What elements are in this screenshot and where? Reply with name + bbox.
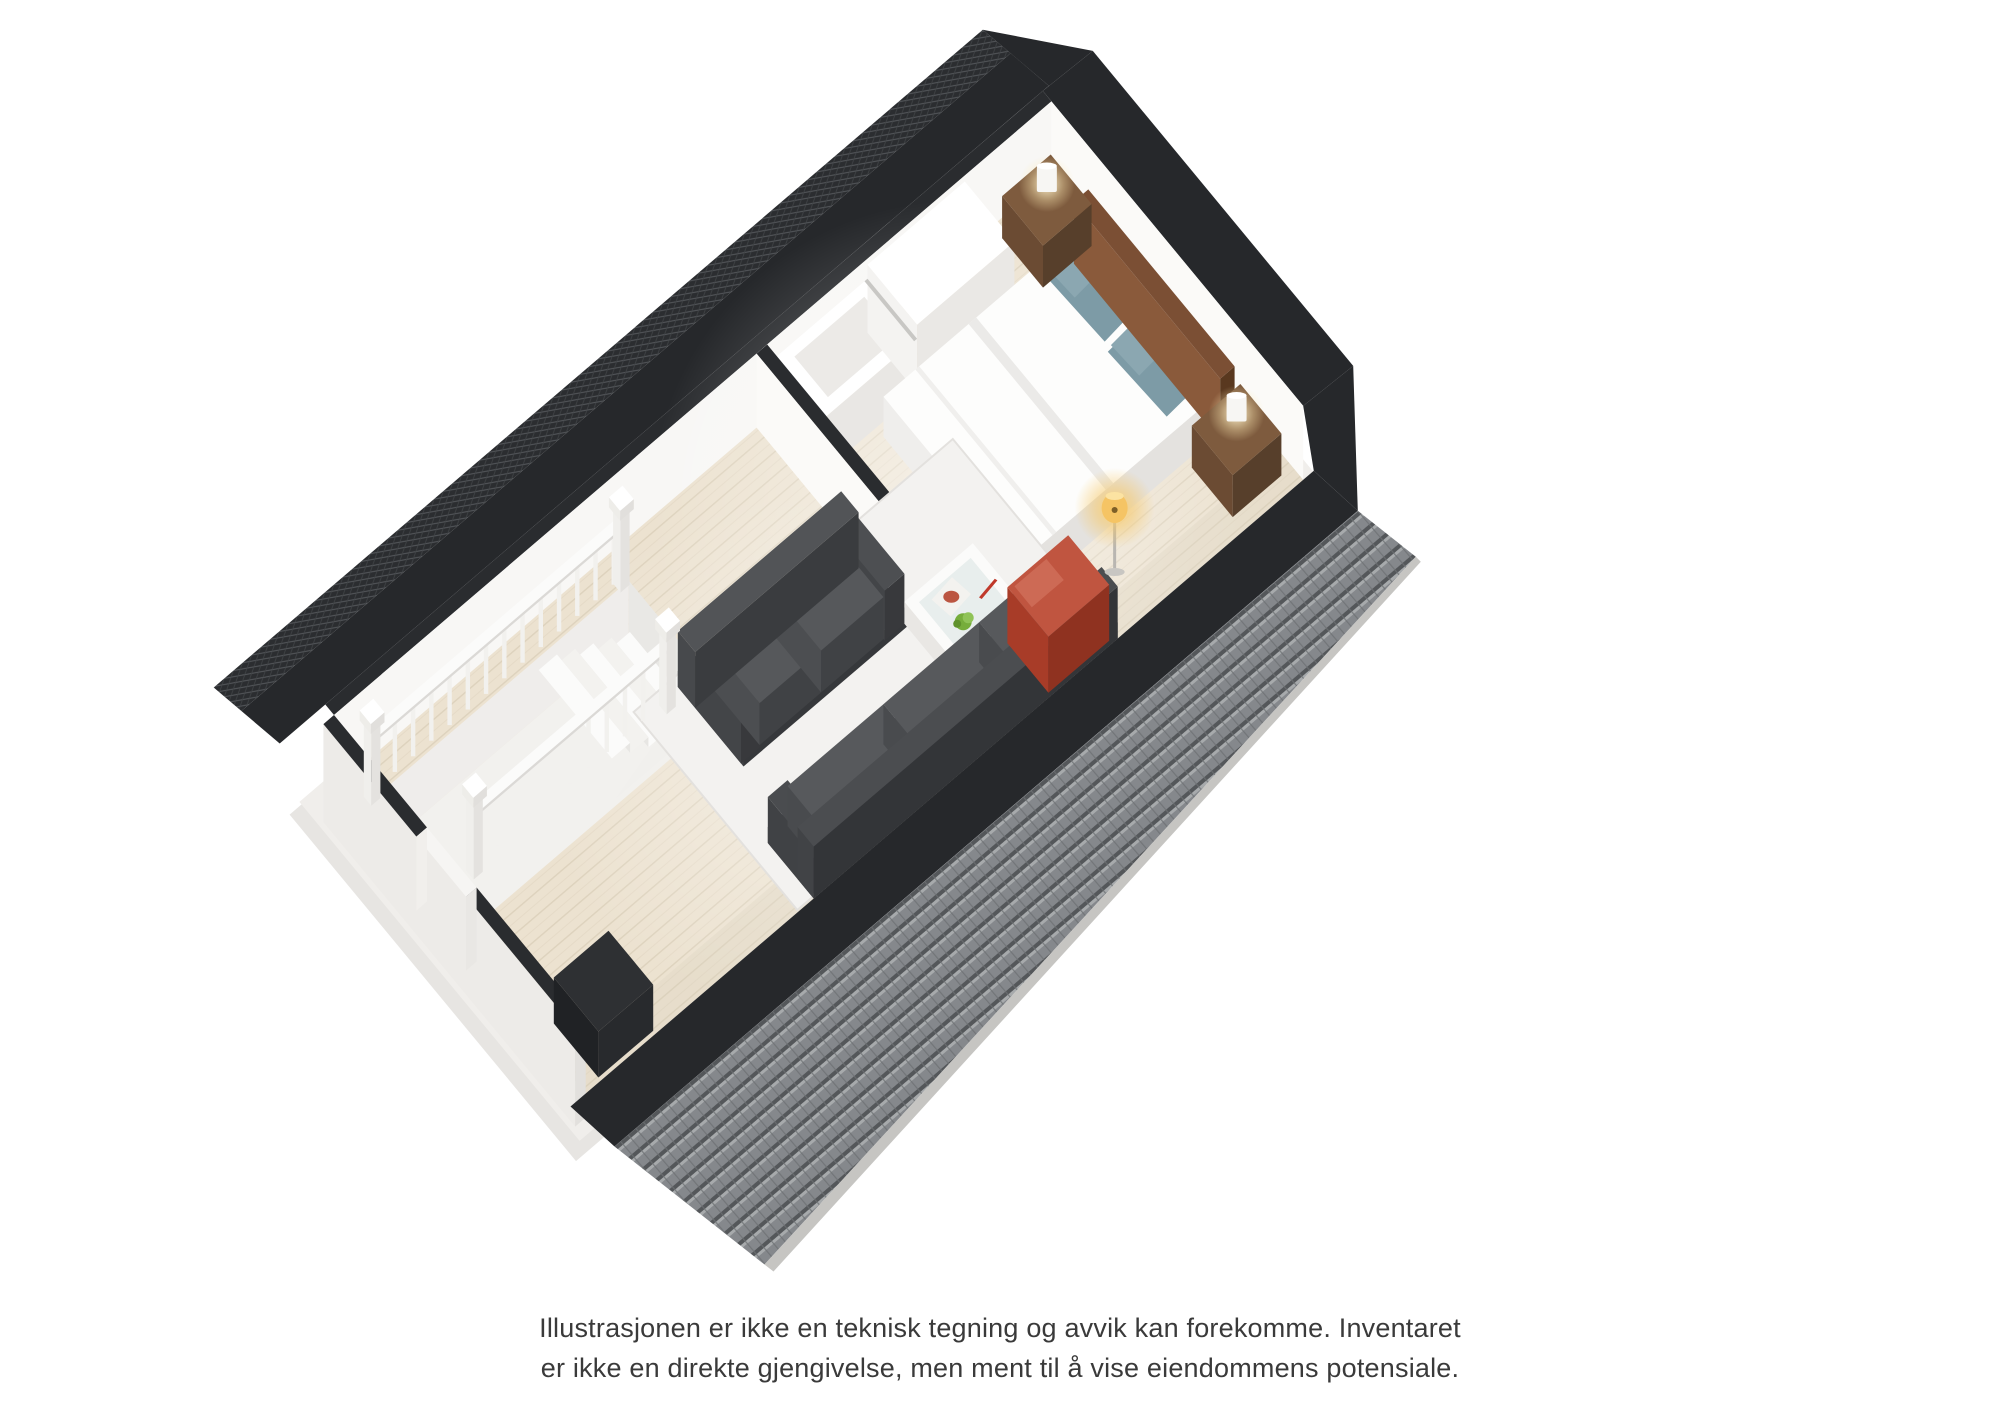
floorplan-stage: Illustrasjonen er ikke en teknisk tegnin… (0, 0, 2000, 1413)
caption-line-1: Illustrasjonen er ikke en teknisk tegnin… (0, 1308, 2000, 1348)
caption-line-2: er ikke en direkte gjengivelse, men ment… (0, 1348, 2000, 1388)
caption: Illustrasjonen er ikke en teknisk tegnin… (0, 1308, 2000, 1388)
floorplan-3d-illustration (0, 0, 2000, 1413)
